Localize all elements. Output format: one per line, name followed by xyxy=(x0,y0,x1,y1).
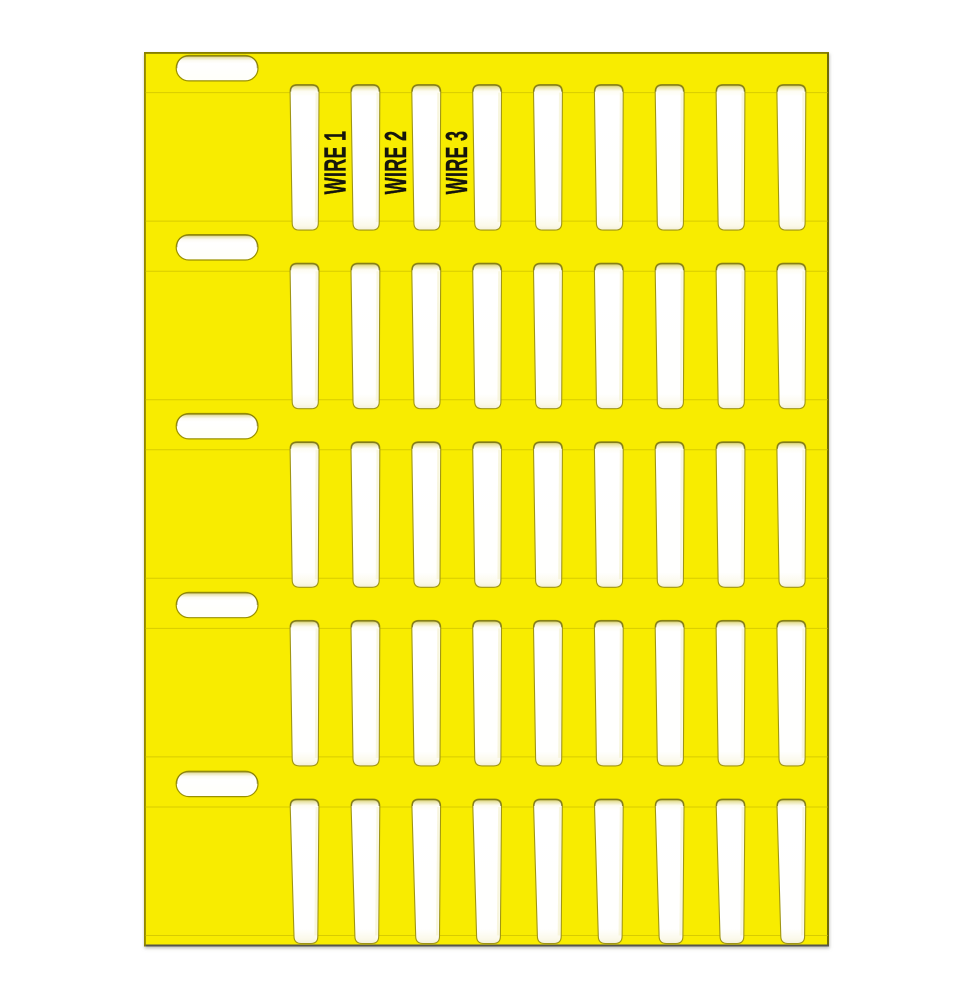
svg-text:WIRE 1: WIRE 1 xyxy=(318,131,352,195)
svg-text:WIRE 3: WIRE 3 xyxy=(440,131,474,195)
svg-text:WIRE 2: WIRE 2 xyxy=(379,131,413,195)
